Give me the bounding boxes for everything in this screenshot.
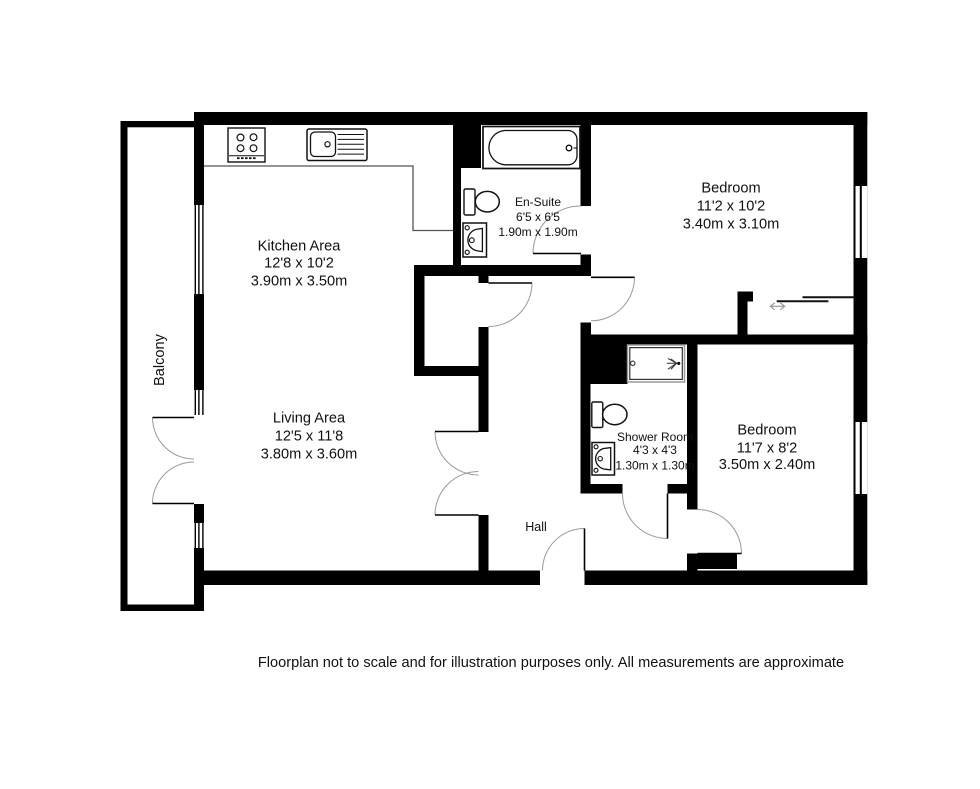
svg-text:12'8 x 10'2: 12'8 x 10'2 — [264, 256, 334, 272]
svg-text:Living Area: Living Area — [273, 410, 346, 426]
svg-text:Balcony: Balcony — [152, 333, 168, 386]
svg-text:11'7 x 8'2: 11'7 x 8'2 — [737, 440, 797, 456]
svg-text:11'2 x 10'2: 11'2 x 10'2 — [697, 198, 766, 214]
svg-text:4'3 x 4'3: 4'3 x 4'3 — [633, 443, 677, 457]
svg-text:Bedroom: Bedroom — [737, 422, 796, 438]
svg-text:Hall: Hall — [525, 520, 547, 534]
svg-text:3.50m x 2.40m: 3.50m x 2.40m — [719, 457, 816, 473]
svg-text:1.90m x 1.90m: 1.90m x 1.90m — [498, 225, 577, 239]
svg-text:Floorplan not to scale and for: Floorplan not to scale and for illustrat… — [258, 655, 844, 671]
svg-text:Kitchen Area: Kitchen Area — [258, 238, 342, 254]
svg-text:3.90m x 3.50m: 3.90m x 3.50m — [251, 274, 348, 290]
svg-text:3.40m x 3.10m: 3.40m x 3.10m — [683, 217, 780, 233]
svg-text:En-Suite: En-Suite — [515, 195, 561, 209]
svg-text:6'5 x 6'5: 6'5 x 6'5 — [516, 210, 560, 224]
svg-text:12'5 x 11'8: 12'5 x 11'8 — [275, 428, 344, 444]
svg-text:Bedroom: Bedroom — [701, 180, 760, 196]
svg-text:1.30m x 1.30m: 1.30m x 1.30m — [615, 459, 694, 473]
svg-text:Shower Room: Shower Room — [617, 430, 693, 444]
svg-text:3.80m x 3.60m: 3.80m x 3.60m — [261, 446, 358, 462]
